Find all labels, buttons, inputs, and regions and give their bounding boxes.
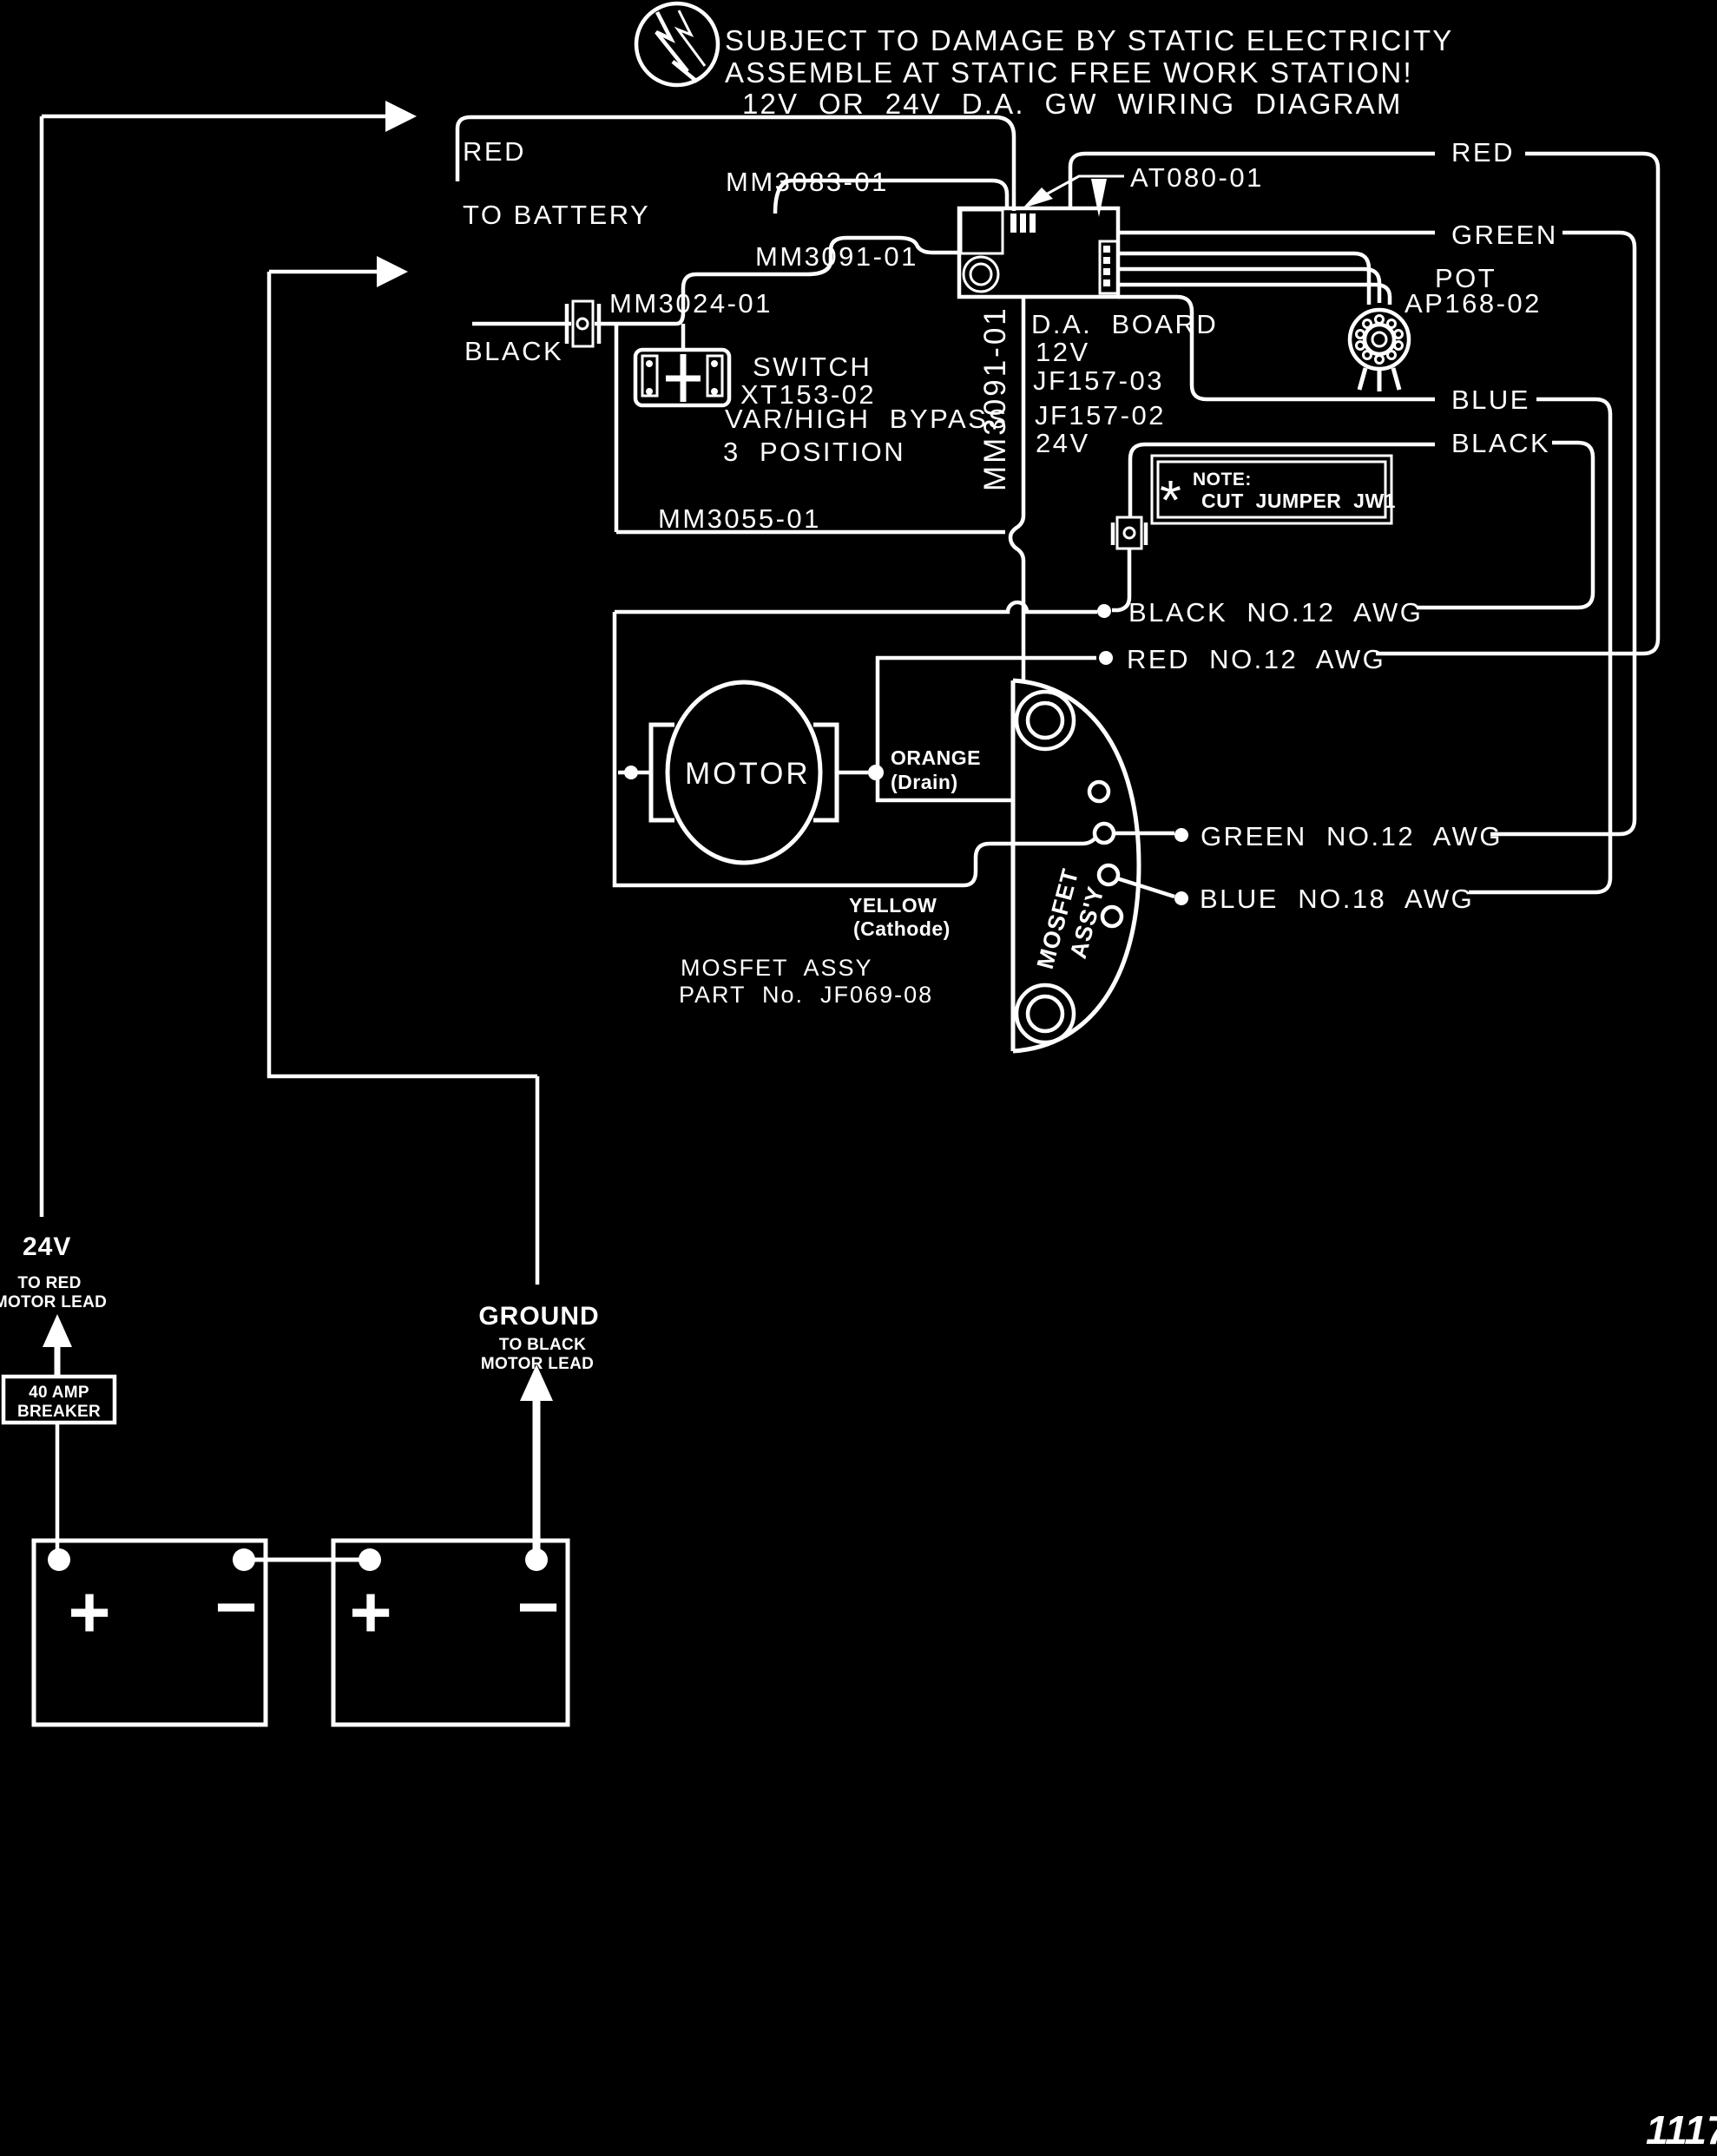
- blue-pin-wire: [1117, 878, 1174, 897]
- orange-label: ORANGE: [891, 746, 981, 769]
- motor-right-terminal-dot: [868, 765, 884, 780]
- to-red-line2: MOTOR LEAD: [0, 1293, 107, 1311]
- fuse-symbol: [567, 301, 599, 346]
- fuse-dot-icon: [577, 319, 588, 329]
- page-number: 1117: [1646, 2107, 1717, 2153]
- note-title: NOTE:: [1193, 470, 1252, 490]
- header-pin: [1103, 268, 1110, 275]
- da-board-24v: 24V: [1036, 428, 1090, 458]
- at080-arrow2-icon: [1091, 179, 1107, 217]
- battery2-plus-icon: +: [349, 1571, 391, 1653]
- mosfet-plate-arc: [1013, 680, 1139, 1051]
- red-lead-arrow-icon: [43, 1314, 72, 1347]
- bank-voltage-label: 24V: [23, 1232, 71, 1261]
- header-pin: [1103, 257, 1110, 264]
- connector-pin: [1030, 214, 1036, 233]
- header-line3: 12V OR 24V D.A. GW WIRING DIAGRAM: [742, 88, 1403, 120]
- switch-positions: 3 POSITION: [723, 437, 905, 467]
- connector-hole-outer: [964, 257, 998, 292]
- switch-mode: VAR/HIGH BYPASS: [725, 404, 1009, 434]
- blue-wire-label: BLUE: [1451, 385, 1530, 415]
- breaker-line1: 40 AMP: [29, 1384, 89, 1402]
- switch-contact-dot: [646, 388, 653, 395]
- jumper-body: [1117, 517, 1141, 549]
- header-pin: [1103, 279, 1110, 286]
- mosfet-pin-drain: [1089, 782, 1108, 801]
- green-wire-right: [1490, 233, 1635, 834]
- red-feed-arrow-icon: [385, 101, 417, 132]
- pot-shaft-inner: [1372, 332, 1386, 346]
- red-awg-label: RED NO.12 AWG: [1127, 644, 1385, 674]
- mosfet-pin-4: [1102, 907, 1122, 926]
- wiring-diagram-page: SUBJECT TO DAMAGE BY STATIC ELECTRICITY …: [0, 0, 1717, 2156]
- header-line2: ASSEMBLE AT STATIC FREE WORK STATION!: [725, 56, 1413, 89]
- black-feed-label: BLACK: [464, 336, 563, 366]
- mosfet-assembly: MOSFET ASS'Y MOSFET ASSY PART No. JF069-…: [679, 680, 1174, 1051]
- note-asterisk: *: [1160, 469, 1181, 531]
- yellow-label: YELLOW: [849, 894, 937, 917]
- red-wire-label: RED: [1451, 137, 1515, 168]
- ground-run-wire: [269, 272, 537, 1076]
- pot-body: [1350, 310, 1409, 369]
- mm3055-label: MM3055-01: [658, 503, 821, 534]
- awg-rows: BLACK NO.12 AWG RED NO.12 AWG GREEN NO.1…: [1097, 597, 1503, 914]
- note-body: CUT JUMPER JW1: [1201, 490, 1396, 512]
- green-awg-terminal-dot: [1174, 828, 1188, 842]
- wiring-diagram-canvas: SUBJECT TO DAMAGE BY STATIC ELECTRICITY …: [0, 0, 1717, 2156]
- jumper-down-wire: [1112, 549, 1129, 610]
- mm3091-vertical-label: MM3091-01: [978, 306, 1012, 491]
- mm3091-top-label: MM3091-01: [755, 241, 918, 272]
- battery1-plus-icon: +: [68, 1571, 110, 1653]
- switch-contact-dot: [646, 360, 653, 367]
- da-board-12v: 12V: [1036, 337, 1090, 367]
- motor-left-terminal-dot: [624, 766, 638, 779]
- header-line1: SUBJECT TO DAMAGE BY STATIC ELECTRICITY: [725, 24, 1453, 56]
- black-awg-terminal-dot: [1097, 604, 1111, 618]
- da-board-jf157-03: JF157-03: [1033, 365, 1164, 396]
- mosfet-pin-green: [1095, 824, 1114, 843]
- mosfet-pin-blue: [1099, 865, 1118, 884]
- at080-arrow-icon: [1023, 187, 1053, 208]
- battery1-pos-post: [48, 1548, 70, 1571]
- mosfet-part-label: PART No. JF069-08: [679, 982, 933, 1008]
- pot-part: AP168-02: [1405, 288, 1542, 319]
- ground-label: GROUND: [478, 1302, 599, 1331]
- at080-label: AT080-01: [1130, 162, 1264, 193]
- to-red-line1: TO RED: [17, 1274, 81, 1292]
- pot-wire-3: [1118, 285, 1390, 305]
- pot-legs: [1359, 368, 1399, 391]
- black-wire-label: BLACK: [1451, 428, 1550, 458]
- static-warning-header: SUBJECT TO DAMAGE BY STATIC ELECTRICITY …: [636, 3, 1453, 120]
- header-pin: [1103, 246, 1110, 253]
- motor-label: MOTOR: [685, 757, 811, 791]
- to-battery-label: TO BATTERY: [463, 200, 650, 230]
- mosfet-hole-top-inner: [1028, 703, 1062, 738]
- blue-awg-label: BLUE NO.18 AWG: [1200, 884, 1474, 914]
- switch-title: SWITCH: [753, 352, 872, 382]
- mosfet-assy-label: MOSFET ASSY: [681, 955, 873, 981]
- mosfet-hole-bottom-outer: [1016, 985, 1074, 1042]
- orange-sub-label: (Drain): [891, 771, 958, 793]
- black-wire-right: [1417, 443, 1593, 608]
- jumper-dot-icon: [1124, 528, 1135, 538]
- to-black-line1: TO BLACK: [499, 1336, 586, 1354]
- red-awg-terminal-dot: [1099, 651, 1113, 665]
- note-box: * NOTE: CUT JUMPER JW1: [1152, 456, 1396, 531]
- da-board-jf157-02: JF157-02: [1035, 400, 1166, 431]
- connector-pin: [1010, 214, 1016, 233]
- lightning-zigzag2-icon: [678, 10, 705, 66]
- jumper-jw1: [1112, 517, 1146, 610]
- black-feed-arrow-icon: [377, 256, 408, 287]
- mm3083-label: MM3083-01: [726, 167, 889, 197]
- connector-at080: AT080-01: [959, 162, 1264, 297]
- black-awg-label: BLACK NO.12 AWG: [1128, 597, 1423, 628]
- battery-feed-wires: RED TO BATTERY BLACK: [42, 101, 650, 1285]
- pot-shaft-outer: [1365, 325, 1394, 354]
- static-electricity-icon: [636, 3, 718, 85]
- red-feed-label: RED: [463, 136, 526, 167]
- battery-bank: 24V TO RED MOTOR LEAD 40 AMP BREAKER GRO…: [0, 1232, 600, 1725]
- green-awg-label: GREEN NO.12 AWG: [1201, 821, 1503, 851]
- yellow-sub-label: (Cathode): [853, 917, 951, 940]
- at080-leader-line: [1038, 176, 1124, 199]
- green-wire-label: GREEN: [1451, 220, 1558, 250]
- switch-contact-dot: [711, 360, 718, 367]
- mosfet-hole-bottom-inner: [1028, 996, 1062, 1031]
- mm3091-vertical-wire: [1010, 297, 1023, 680]
- connector-hole-inner: [970, 264, 991, 285]
- mosfet-hole-top-outer: [1016, 692, 1074, 749]
- breaker-line2: BREAKER: [17, 1403, 101, 1421]
- blue-wire-right: [1469, 399, 1610, 892]
- connector-pin: [1020, 214, 1026, 233]
- switch-symbol: SWITCH XT153-02 VAR/HIGH BYPASS 3 POSITI…: [635, 350, 1009, 467]
- battery2-minus-icon: −: [516, 1566, 559, 1647]
- battery1-minus-icon: −: [214, 1566, 257, 1647]
- blue-awg-terminal-dot: [1174, 891, 1188, 905]
- mm3024-label: MM3024-01: [609, 288, 773, 319]
- switch-contact-dot: [711, 388, 718, 395]
- connector-inner-square: [961, 210, 1003, 253]
- fuse-body: [573, 301, 593, 346]
